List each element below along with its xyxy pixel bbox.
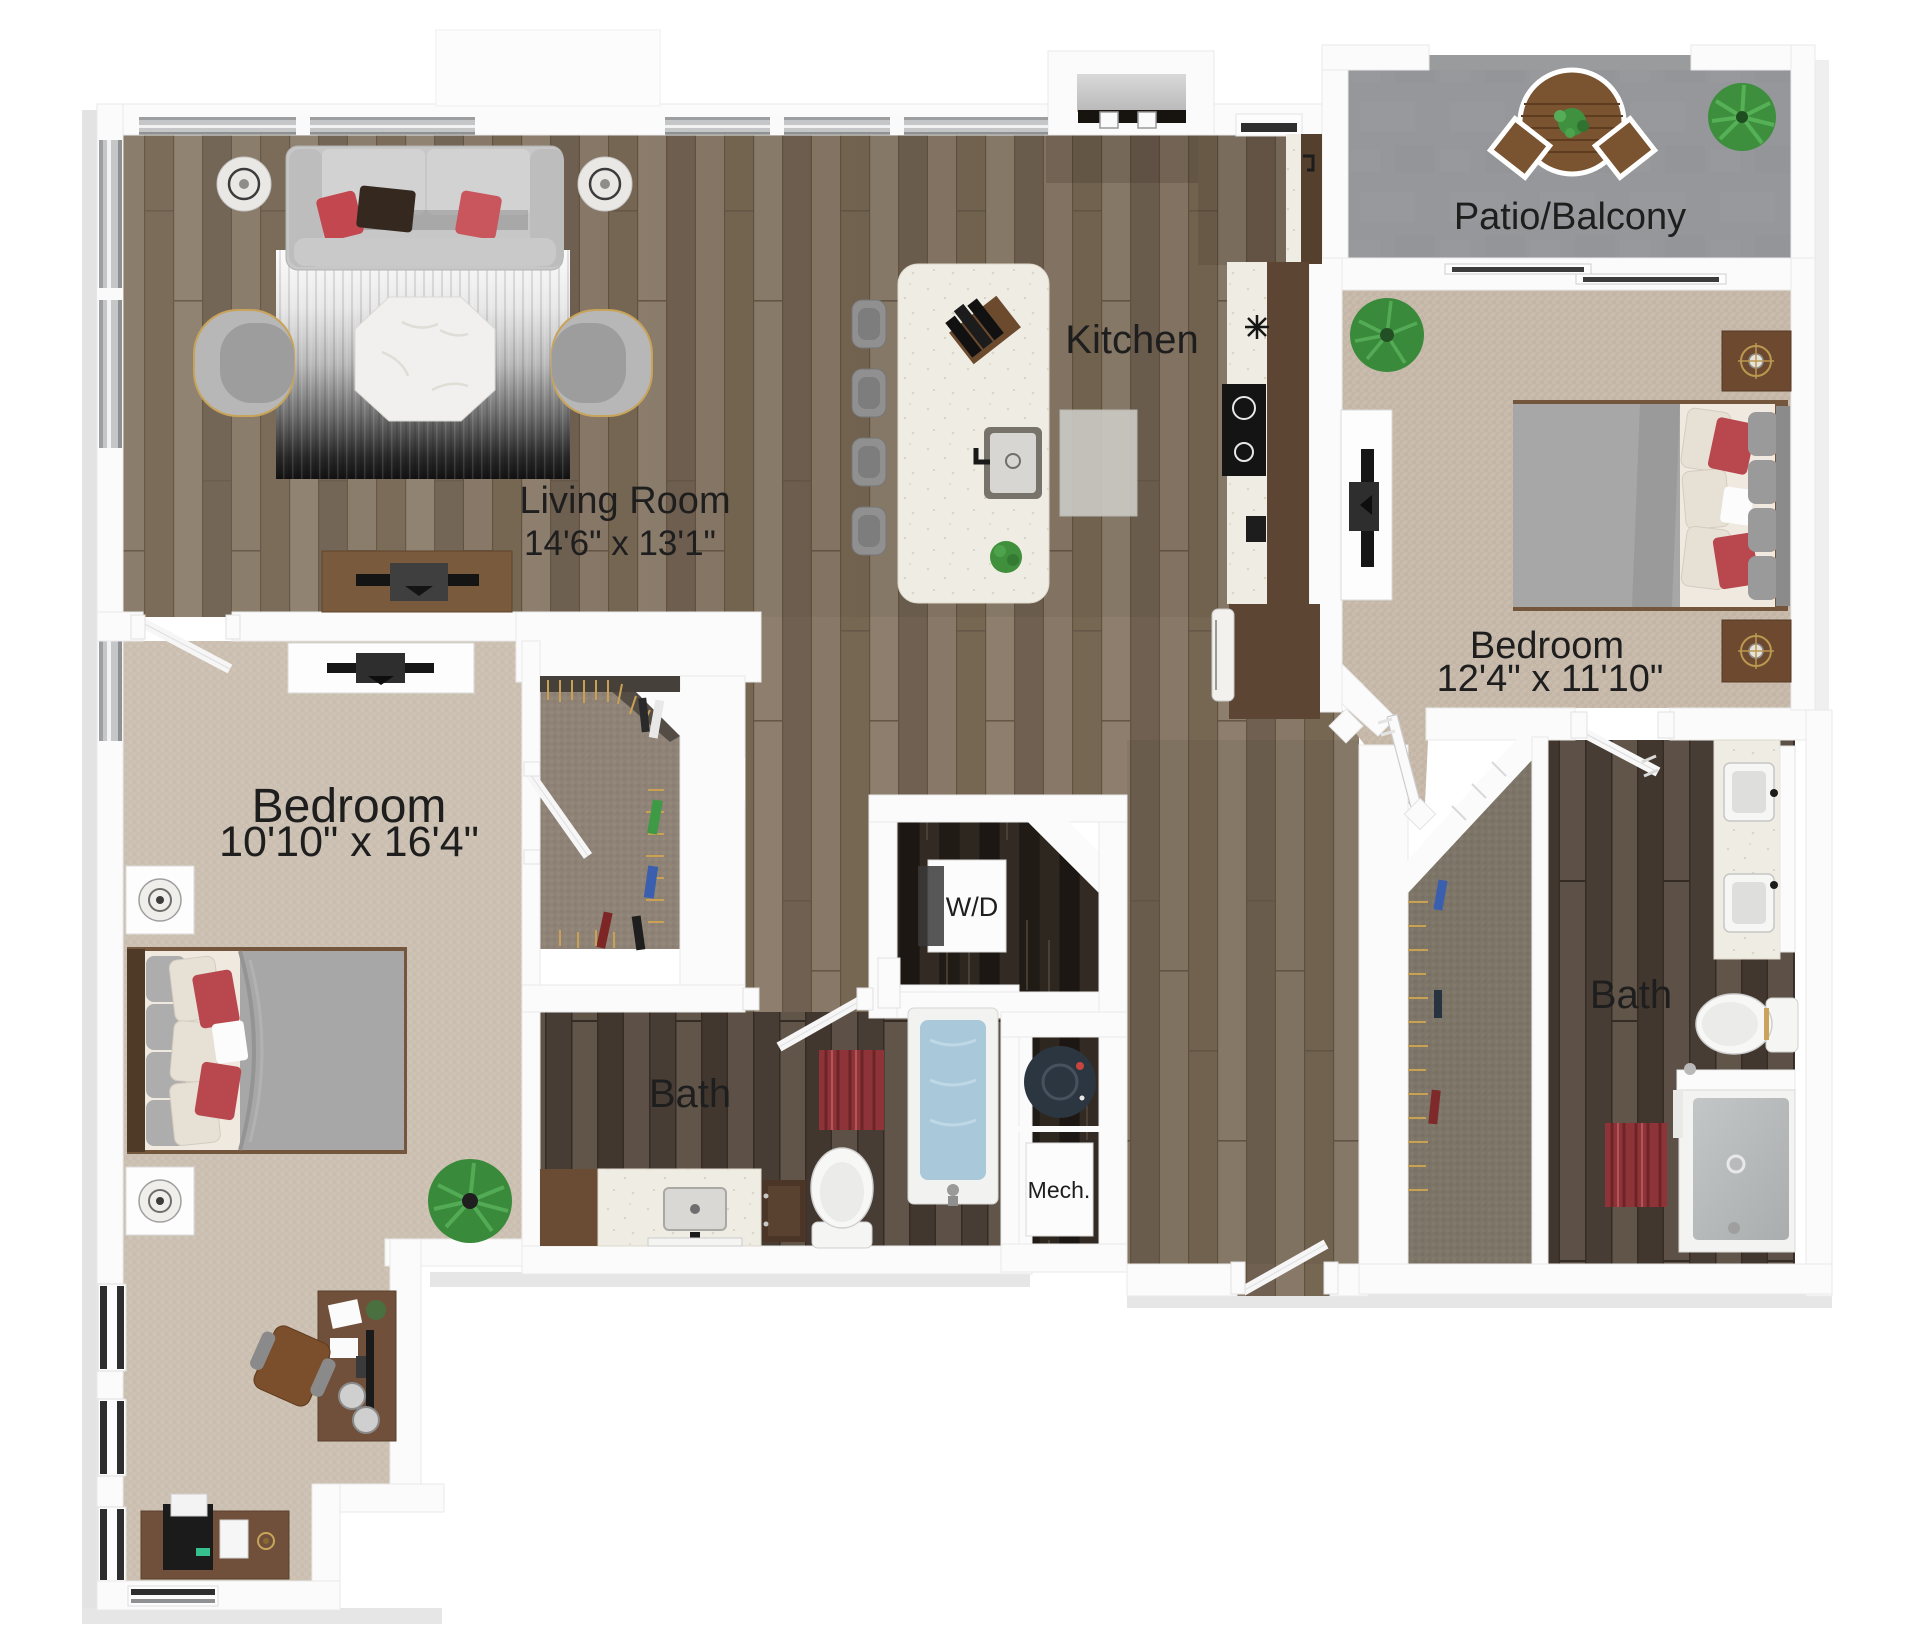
svg-text:Living Room: Living Room (519, 480, 730, 522)
svg-text:12'4" x 11'10": 12'4" x 11'10" (1437, 658, 1664, 700)
svg-text:Kitchen: Kitchen (1065, 318, 1198, 362)
svg-text:Mech.: Mech. (1028, 1177, 1091, 1203)
svg-text:Bath: Bath (649, 1072, 731, 1116)
svg-text:14'6" x 13'1": 14'6" x 13'1" (524, 524, 716, 563)
svg-text:10'10" x 16'4": 10'10" x 16'4" (219, 818, 479, 866)
svg-text:Bath: Bath (1590, 973, 1672, 1017)
svg-text:W/D: W/D (946, 892, 998, 922)
svg-text:Patio/Balcony: Patio/Balcony (1454, 196, 1686, 238)
